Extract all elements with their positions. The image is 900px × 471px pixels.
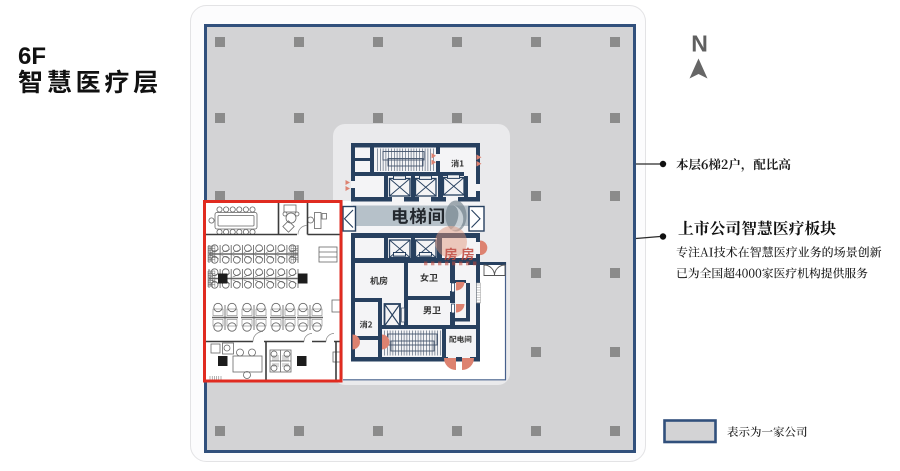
svg-text:6F: 6F xyxy=(18,43,46,70)
svg-text:N: N xyxy=(691,31,708,57)
